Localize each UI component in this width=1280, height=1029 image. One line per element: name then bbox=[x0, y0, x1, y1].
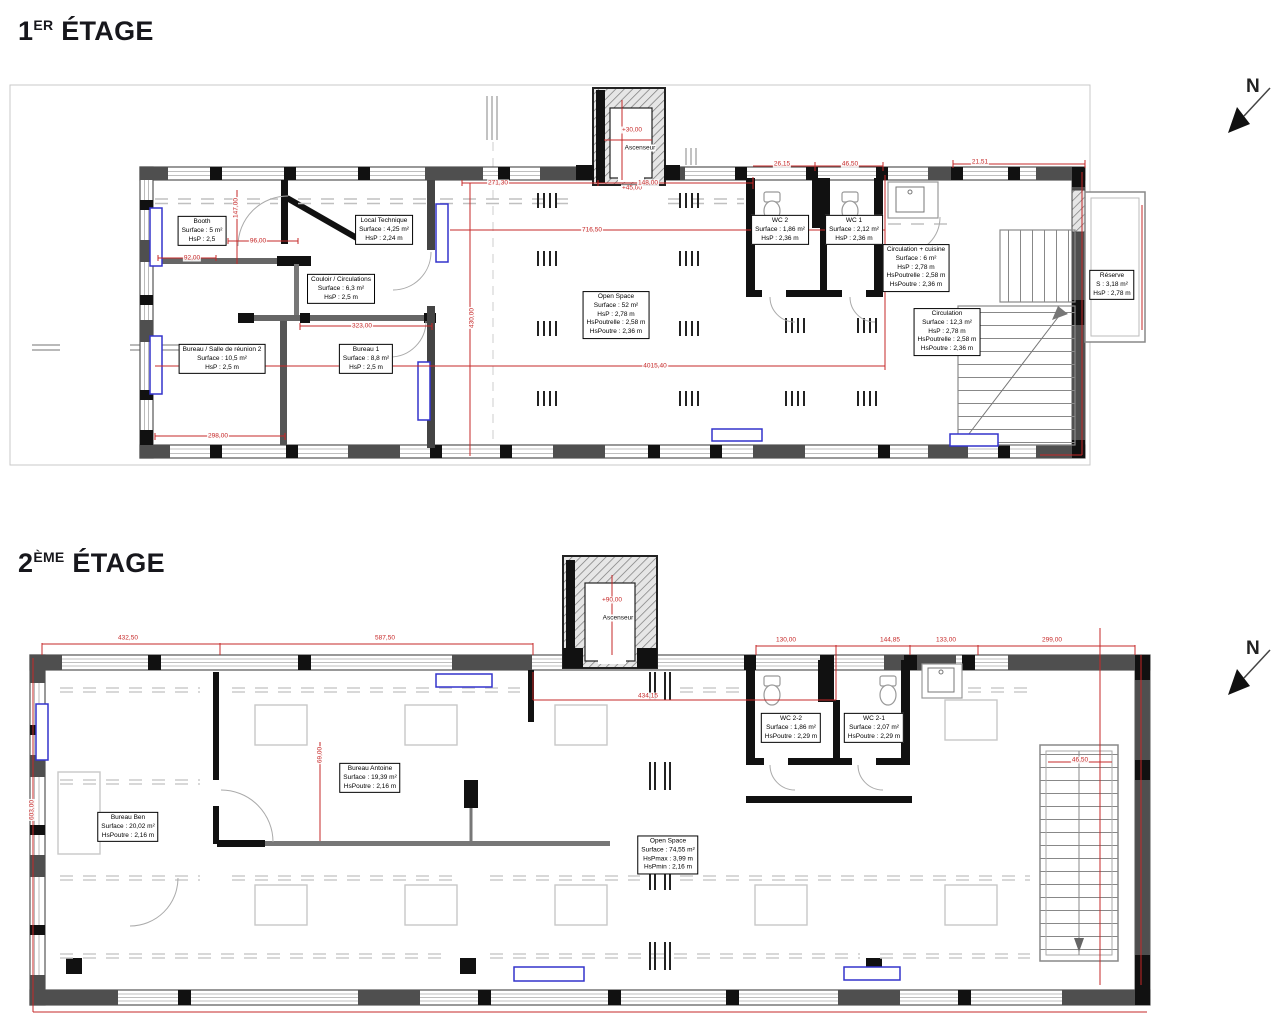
room-label-reserve: Réserve S : 3,18 m² HsP : 2,78 m bbox=[1089, 270, 1134, 300]
north-label-floor2: N bbox=[1246, 638, 1260, 660]
dimension-label: 271,30 bbox=[487, 180, 509, 187]
dimension-label: 434,15 bbox=[637, 693, 659, 700]
dimension-label: 298,00 bbox=[207, 433, 229, 440]
room-label-bureau-antoine: Bureau Antoine Surface : 19,39 m² HsPout… bbox=[339, 763, 400, 793]
floor1-title-sup: ER bbox=[33, 17, 53, 33]
north-label-floor1: N bbox=[1246, 76, 1260, 98]
room-label-wc-1: WC 1 Surface : 2,12 m² HsP : 2,36 m bbox=[825, 215, 883, 245]
floor1-plan bbox=[10, 85, 1145, 465]
elevator2-level: +90,00 bbox=[601, 597, 623, 604]
dimension-label: 96,00 bbox=[249, 238, 267, 245]
elevator1-label: Ascenseur bbox=[625, 145, 656, 152]
dimension-label: 603,00 bbox=[29, 799, 36, 821]
dimension-label: 299,00 bbox=[1041, 637, 1063, 644]
floorplan-drawing bbox=[0, 0, 1280, 1029]
room-label-wc-2-1: WC 2-1 Surface : 2,07 m² HsPoutre : 2,29… bbox=[844, 713, 904, 743]
dimension-label: 133,00 bbox=[935, 637, 957, 644]
floor2-plan bbox=[30, 556, 1150, 1012]
room-label-open-space-1: Open Space Surface : 52 m² HsP : 2,78 m … bbox=[583, 291, 650, 339]
dimension-label: 323,00 bbox=[351, 323, 373, 330]
dimension-label: 4015,40 bbox=[642, 363, 668, 370]
room-label-wc-2-2: WC 2-2 Surface : 1,86 m² HsPoutre : 2,29… bbox=[761, 713, 821, 743]
room-label-circulation: Circulation Surface : 12,3 m² HsP : 2,78… bbox=[914, 308, 981, 356]
room-label-local-technique: Local Technique Surface : 4,25 m² HsP : … bbox=[355, 215, 413, 245]
floor2-title-word: ÉTAGE bbox=[72, 548, 165, 578]
floor2-title-num: 2 bbox=[18, 548, 33, 578]
room-label-bureau-1: Bureau 1 Surface : 8,8 m² HsP : 2,5 m bbox=[339, 344, 393, 374]
dimension-label: 69,00 bbox=[317, 746, 324, 764]
room-label-booth: Booth Surface : 5 m² HsP : 2,5 bbox=[178, 216, 227, 246]
dimension-label: 26,15 bbox=[773, 161, 791, 168]
elevator2-label: Ascenseur bbox=[603, 615, 634, 622]
dimension-label: 587,50 bbox=[374, 635, 396, 642]
floor2-title: 2ÈME ÉTAGE bbox=[18, 548, 165, 579]
dimension-label: 432,50 bbox=[117, 635, 139, 642]
floor1-title-word: ÉTAGE bbox=[61, 16, 154, 46]
blueprint-canvas: 1ER ÉTAGE 2ÈME ÉTAGE N N Booth Surface :… bbox=[0, 0, 1280, 1029]
dimension-label: 130,00 bbox=[775, 637, 797, 644]
room-label-couloir-circulations: Couloir / Circulations Surface : 6,3 m² … bbox=[307, 274, 375, 304]
dimension-label: 92,00 bbox=[183, 255, 201, 262]
floor1-title: 1ER ÉTAGE bbox=[18, 16, 154, 47]
dimension-label: 716,50 bbox=[581, 227, 603, 234]
dimension-label: 147,00 bbox=[233, 197, 240, 219]
room-label-circulation-cuisine: Circulation + cuisine Surface : 6 m² HsP… bbox=[883, 244, 950, 292]
dimension-label: 46,50 bbox=[841, 161, 859, 168]
floor1-title-num: 1 bbox=[18, 16, 33, 46]
room-label-bureau-salle-reunion-2: Bureau / Salle de réunion 2 Surface : 10… bbox=[179, 344, 266, 374]
floor2-title-sup: ÈME bbox=[33, 549, 64, 565]
dimension-label: 46,50 bbox=[1071, 757, 1089, 764]
dimension-label: 148,00 bbox=[637, 180, 659, 187]
dimension-label: 430,00 bbox=[469, 307, 476, 329]
room-label-bureau-ben: Bureau Ben Surface : 20,02 m² HsPoutre :… bbox=[97, 812, 158, 842]
dimension-label: 144,85 bbox=[879, 637, 901, 644]
elevator1-level-top: +30,00 bbox=[621, 127, 643, 134]
dimension-label: 21,51 bbox=[971, 159, 989, 166]
room-label-open-space-2: Open Space Surface : 74,55 m² HsPmax : 3… bbox=[637, 835, 698, 874]
room-label-wc-2: WC 2 Surface : 1,86 m² HsP : 2,36 m bbox=[751, 215, 809, 245]
